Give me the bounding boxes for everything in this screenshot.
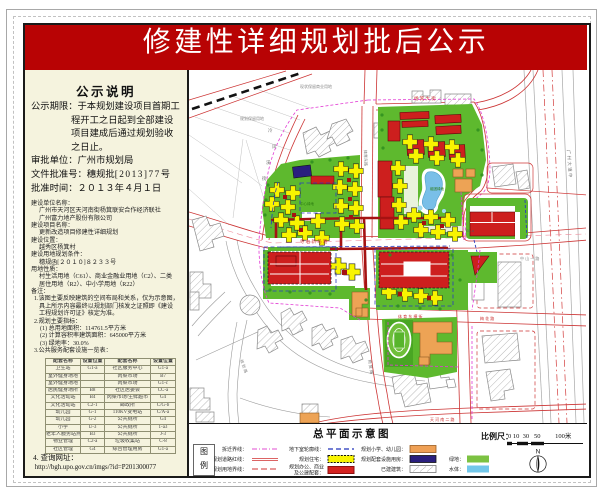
svg-text:规划保留用地: 规划保留用地 bbox=[240, 115, 264, 121]
svg-text:杨 箕 大 街: 杨 箕 大 街 bbox=[414, 95, 436, 102]
svg-text:G1-a: G1-a bbox=[466, 229, 474, 233]
svg-text:规划办公、商业: 规划办公、商业 bbox=[289, 464, 324, 471]
svg-text:梅 花 路: 梅 花 路 bbox=[480, 315, 494, 321]
svg-text:中心绿地: 中心绿地 bbox=[300, 201, 314, 206]
svg-text:规划小学、幼儿园：: 规划小学、幼儿园： bbox=[361, 446, 406, 453]
svg-text:体育东路: 体育东路 bbox=[363, 150, 370, 166]
svg-text:绿地：: 绿地： bbox=[449, 456, 464, 463]
svg-text:组团绿地: 组团绿地 bbox=[430, 186, 444, 191]
svg-text:水体：: 水体： bbox=[449, 466, 464, 473]
svg-text:冷: 冷 bbox=[268, 127, 273, 134]
svg-text:中 山 一 路: 中 山 一 路 bbox=[520, 255, 539, 261]
svg-text:N: N bbox=[536, 449, 541, 456]
svg-text:规划住宅：: 规划住宅： bbox=[299, 456, 324, 463]
svg-text:规划用地界线：: 规划用地界线： bbox=[214, 466, 247, 473]
svg-text:溪: 溪 bbox=[266, 159, 271, 166]
svg-text:规划配套设施用房：: 规划配套设施用房： bbox=[361, 456, 406, 463]
svg-text:已建建筑：: 已建建筑： bbox=[381, 466, 406, 473]
svg-text:天 河 南 二 路: 天 河 南 二 路 bbox=[430, 416, 454, 422]
svg-text:地下室轮廓线：: 地下室轮廓线： bbox=[289, 446, 324, 453]
svg-text:体 育 东 横 街: 体 育 东 横 街 bbox=[398, 313, 422, 319]
svg-text:规划道路红线：: 规划道路红线： bbox=[214, 456, 247, 463]
svg-text:现状保留商业用地: 现状保留商业用地 bbox=[300, 83, 332, 89]
svg-text:寺 右 新 马 路: 寺 右 新 马 路 bbox=[300, 238, 328, 245]
svg-text:街: 街 bbox=[262, 175, 267, 182]
svg-text:拆迁界线：: 拆迁界线： bbox=[222, 446, 247, 453]
